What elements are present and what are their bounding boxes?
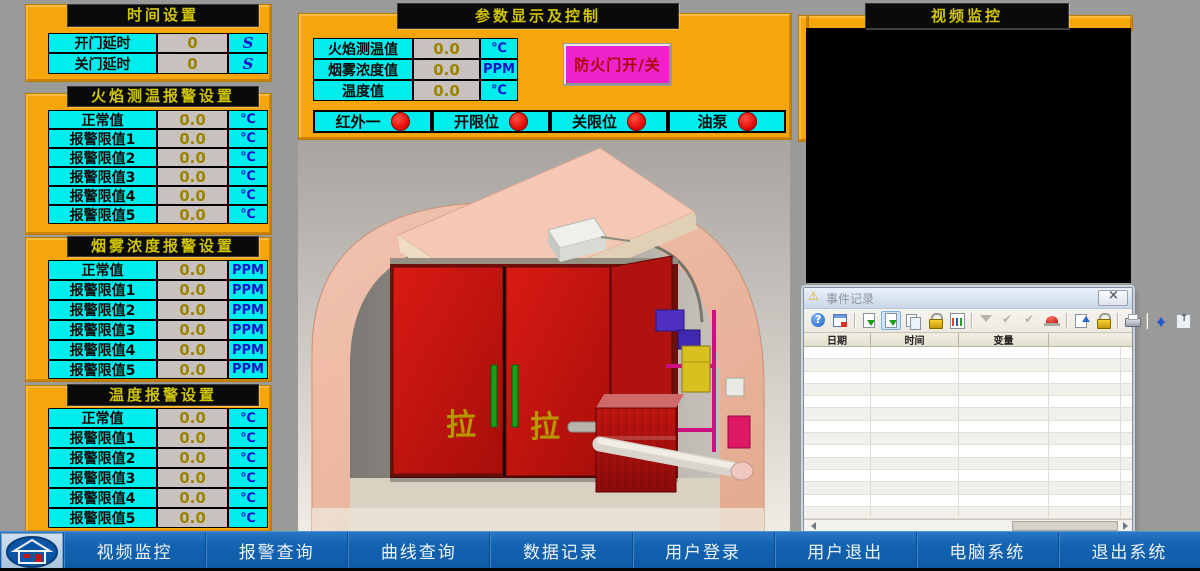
unit-label: PPM [480, 59, 518, 80]
event-toolbar [804, 309, 1132, 333]
row-label: 温度值 [313, 80, 413, 101]
row-label: 报警限值4 [48, 488, 157, 508]
row-label: 报警限值3 [48, 320, 157, 340]
taskbar-button-computer-system[interactable]: 电脑系统 [916, 532, 1058, 569]
row-label: 报警限值1 [48, 428, 157, 448]
unit-label: ℃ [228, 428, 268, 448]
scroll-left-icon[interactable] [805, 521, 815, 530]
sort-icon[interactable] [1151, 311, 1171, 330]
floor-front [312, 508, 764, 531]
video-panel-title: 视频监控 [865, 3, 1069, 29]
unit-label: S [228, 33, 268, 53]
unit-label: ℃ [228, 508, 268, 528]
indicator-label: 关限位 [572, 111, 617, 132]
unit-label: ℃ [228, 129, 268, 148]
close-icon[interactable] [1098, 290, 1128, 306]
value-field[interactable]: 0.0 [157, 448, 228, 468]
taskbar-button-user-login[interactable]: 用户登录 [632, 532, 774, 569]
pump-pink [728, 416, 750, 448]
scroll-right-icon[interactable] [1121, 521, 1131, 530]
toolbar-separator [854, 313, 855, 329]
unit-label: ℃ [228, 167, 268, 186]
column-header-date[interactable]: 日期 [804, 333, 871, 346]
value-field[interactable]: 0.0 [157, 129, 228, 148]
event-record-window: 事件记录 日期 时间 变量 待处理：0 待确认 [803, 287, 1133, 532]
chart-icon[interactable] [947, 311, 967, 330]
indicator-infrared: 红外一 [313, 110, 432, 133]
param-panel-title: 参数显示及控制 [397, 3, 679, 29]
pipe-gray [568, 422, 600, 432]
taskbar-button-data-record[interactable]: 数据记录 [489, 532, 631, 569]
taskbar-button-video[interactable]: 视频监控 [63, 532, 205, 569]
unit-label: PPM [228, 260, 268, 280]
event-table-row [804, 433, 1132, 445]
value-field[interactable]: 0.0 [157, 186, 228, 205]
unit-label: ℃ [480, 38, 518, 59]
fire-door-toggle-button[interactable]: 防火门开/关 [564, 44, 671, 85]
unit-label: PPM [228, 320, 268, 340]
scrollbar-thumb[interactable] [1012, 521, 1118, 531]
unit-label: ℃ [228, 468, 268, 488]
row-label: 报警限值2 [48, 448, 157, 468]
confirm-all-disabled-icon[interactable] [1020, 311, 1040, 330]
toolbar-separator [971, 313, 972, 329]
red-lamp-icon [391, 112, 410, 131]
value-field[interactable]: 0.0 [157, 320, 228, 340]
taskbar-button-alarm-query[interactable]: 报警查询 [205, 532, 347, 569]
value-field[interactable]: 0.0 [157, 110, 228, 129]
value-field[interactable]: 0.0 [157, 408, 228, 428]
value-field[interactable]: 0.0 [157, 300, 228, 320]
row-label: 报警限值1 [48, 129, 157, 148]
copy-icon[interactable] [903, 311, 923, 330]
unit-label: ℃ [228, 205, 268, 224]
to-top-icon[interactable] [1173, 311, 1193, 330]
export-selected-icon[interactable] [881, 311, 901, 330]
tunnel-scene: 拉 拉 [298, 140, 790, 531]
valve-purple-1 [656, 310, 684, 331]
horizontal-scrollbar[interactable] [804, 519, 1132, 531]
control-box-yellow [682, 346, 710, 392]
event-table-header: 日期 时间 变量 [804, 333, 1132, 347]
indicator-label: 红外一 [335, 111, 380, 132]
video-feed [806, 28, 1131, 283]
unit-label: ℃ [228, 148, 268, 167]
row-label: 报警限值5 [48, 508, 157, 528]
indicator-label: 油泵 [697, 111, 727, 132]
event-table-row [804, 384, 1132, 396]
unit-label: PPM [228, 360, 268, 379]
row-label: 报警限值2 [48, 300, 157, 320]
export-icon[interactable] [859, 311, 879, 330]
filter-disabled-icon[interactable] [976, 311, 996, 330]
toolbar-separator [1117, 313, 1118, 329]
event-table-row [804, 372, 1132, 384]
door-handle-right [512, 365, 518, 427]
taskbar-button-exit-system[interactable]: 退出系统 [1058, 532, 1200, 569]
lock-arrow-icon[interactable] [1093, 311, 1113, 330]
junction-box-white [726, 378, 744, 396]
value-display: 0.0 [413, 59, 480, 80]
value-display: 0.0 [413, 38, 480, 59]
calendar-icon[interactable] [830, 311, 850, 330]
door-pull-label-left: 拉 [446, 408, 476, 443]
value-field[interactable]: 0.0 [157, 508, 228, 528]
value-field[interactable]: 0.0 [157, 488, 228, 508]
row-label: 火焰测温值 [313, 38, 413, 59]
value-field[interactable]: 0.0 [157, 428, 228, 448]
indicator-open-limit: 开限位 [432, 110, 550, 133]
unit-label: ℃ [228, 488, 268, 508]
red-lamp-icon [509, 112, 528, 131]
row-label: 烟雾浓度值 [313, 59, 413, 80]
time-settings-title: 时间设置 [67, 4, 259, 27]
row-label: 报警限值4 [48, 340, 157, 360]
event-table-row [804, 507, 1132, 519]
event-table-row [804, 347, 1132, 359]
alarm-icon[interactable] [1042, 311, 1062, 330]
unit-label: ℃ [228, 448, 268, 468]
value-display: 0.0 [413, 80, 480, 101]
row-label: 报警限值1 [48, 280, 157, 300]
red-lamp-icon [627, 112, 646, 131]
note-icon[interactable] [1071, 311, 1091, 330]
value-field[interactable]: 0 [157, 53, 228, 74]
event-table-row [804, 482, 1132, 494]
red-lamp-icon [738, 112, 757, 131]
cabinet-top [596, 394, 684, 408]
row-label: 报警限值5 [48, 205, 157, 224]
value-field[interactable]: 0.0 [157, 468, 228, 488]
event-window-title: 事件记录 [826, 290, 874, 307]
row-label: 报警限值3 [48, 468, 157, 488]
event-table-row [804, 408, 1132, 420]
column-header-variable[interactable]: 变量 [959, 333, 1049, 346]
toolbar-separator [1146, 313, 1147, 329]
row-label: 正常值 [48, 110, 157, 129]
event-window-titlebar[interactable]: 事件记录 [804, 288, 1132, 309]
row-label: 报警限值5 [48, 360, 157, 379]
column-header-time[interactable]: 时间 [871, 333, 959, 346]
unit-label: PPM [228, 280, 268, 300]
event-table-row [804, 458, 1132, 470]
event-table-row [804, 445, 1132, 457]
door-handle-left [491, 365, 497, 427]
confirm-disabled-icon[interactable] [998, 311, 1018, 330]
row-label: 报警限值4 [48, 186, 157, 205]
indicator-close-limit: 关限位 [550, 110, 668, 133]
event-table-row [804, 495, 1132, 507]
unit-label: ℃ [228, 408, 268, 428]
pipe-magenta-branch2 [678, 428, 716, 432]
toolbar-separator [1066, 313, 1067, 329]
white-pipe-cap [731, 462, 753, 480]
value-field[interactable]: 0.0 [157, 260, 228, 280]
value-field[interactable]: 0.0 [157, 280, 228, 300]
event-table-row [804, 359, 1132, 371]
indicator-oil-pump: 油泵 [668, 110, 786, 133]
row-label: 报警限值2 [48, 148, 157, 167]
print-icon[interactable] [1122, 311, 1142, 330]
lock-icon[interactable] [925, 311, 945, 330]
value-field[interactable]: 0.0 [157, 205, 228, 224]
unit-label: S [228, 53, 268, 74]
row-label: 报警限值3 [48, 167, 157, 186]
column-header-blank[interactable] [1049, 333, 1132, 346]
event-table-row [804, 421, 1132, 433]
temp-alarm-title: 温度报警设置 [67, 384, 259, 406]
value-field[interactable]: 0 [157, 33, 228, 53]
door-pull-label-right: 拉 [530, 410, 560, 445]
value-field[interactable]: 0.0 [157, 148, 228, 167]
taskbar-button-user-logout[interactable]: 用户退出 [774, 532, 916, 569]
row-label: 开门延时 [48, 33, 157, 53]
event-table-row [804, 396, 1132, 408]
help-icon[interactable] [808, 311, 828, 330]
event-table-body [804, 347, 1132, 519]
unit-label: PPM [228, 340, 268, 360]
warning-icon [808, 292, 822, 305]
unit-label: ℃ [480, 80, 518, 101]
smoke-alarm-title: 烟雾浓度报警设置 [67, 236, 259, 257]
taskbar-button-curve-query[interactable]: 曲线查询 [347, 532, 489, 569]
home-button[interactable] [1, 533, 63, 570]
value-field[interactable]: 0.0 [157, 360, 228, 379]
taskbar: 视频监控 报警查询 曲线查询 数据记录 用户登录 用户退出 电脑系统 退出系统 [0, 531, 1200, 569]
unit-label: ℃ [228, 186, 268, 205]
unit-label: ℃ [228, 110, 268, 129]
indicator-label: 开限位 [454, 111, 499, 132]
row-label: 正常值 [48, 408, 157, 428]
value-field[interactable]: 0.0 [157, 167, 228, 186]
row-label: 正常值 [48, 260, 157, 280]
value-field[interactable]: 0.0 [157, 340, 228, 360]
home-icon [6, 536, 58, 568]
event-table-row [804, 470, 1132, 482]
row-label: 关门延时 [48, 53, 157, 74]
flame-alarm-title: 火焰测温报警设置 [67, 86, 259, 107]
unit-label: PPM [228, 300, 268, 320]
